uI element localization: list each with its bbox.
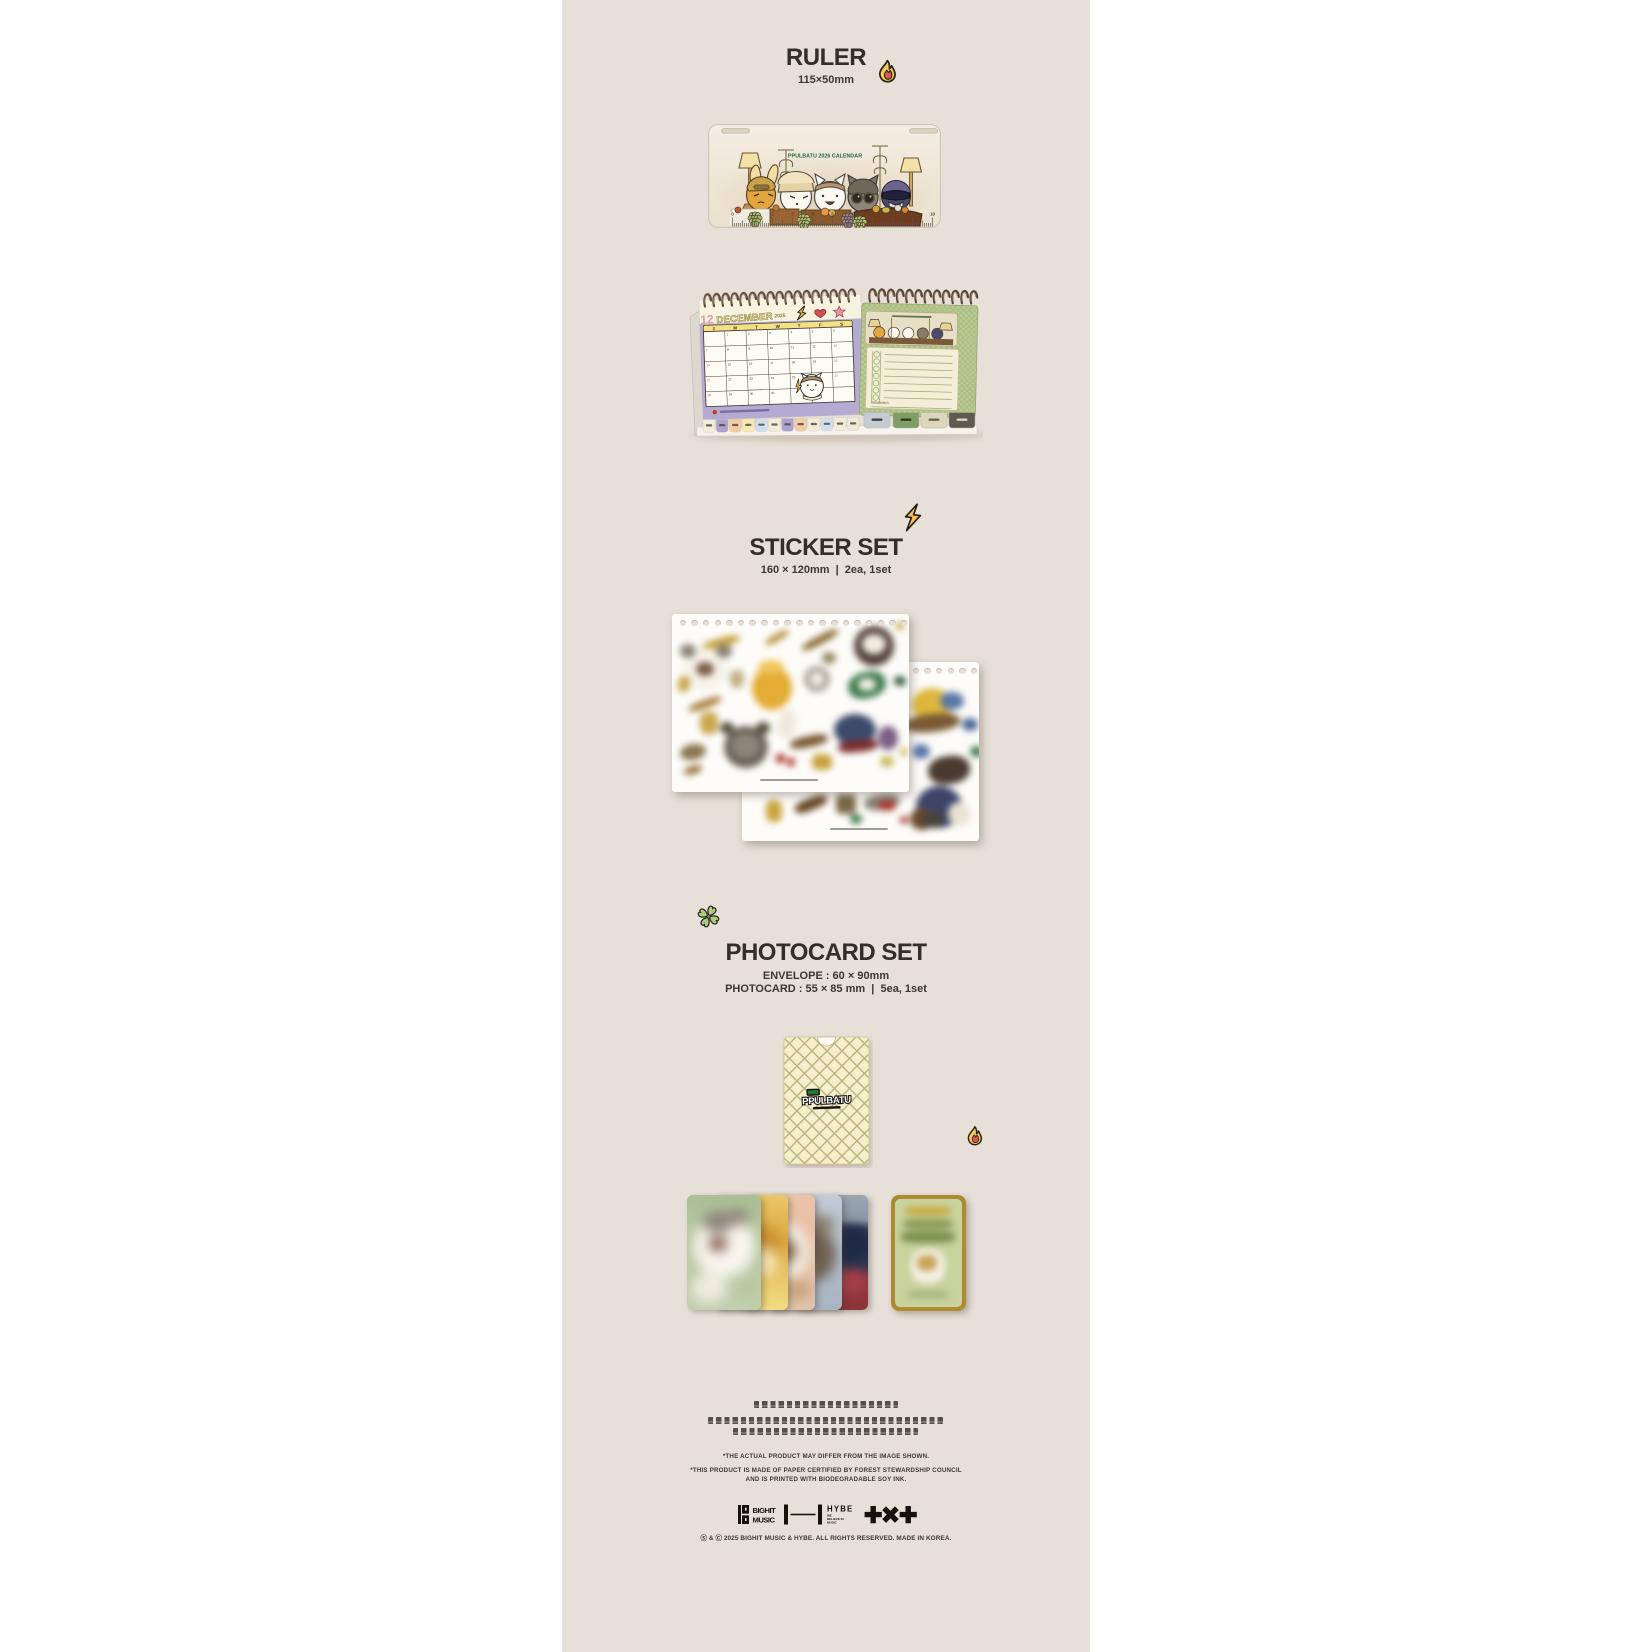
svg-text:2: 2	[771, 212, 774, 217]
svg-text:23: 23	[749, 377, 753, 381]
svg-text:PPULBATU 2026 CALENDAR: PPULBATU 2026 CALENDAR	[788, 154, 862, 160]
svg-text:4: 4	[811, 212, 814, 217]
svg-text:27: 27	[834, 374, 838, 378]
svg-text:17: 17	[770, 361, 774, 365]
svg-text:30: 30	[750, 392, 754, 396]
svg-text:8: 8	[891, 212, 894, 217]
svg-text:12: 12	[812, 344, 816, 348]
svg-text:14: 14	[706, 363, 710, 367]
svg-text:T: T	[755, 325, 758, 330]
svg-text:28: 28	[707, 393, 711, 397]
svg-text:5: 5	[831, 212, 834, 217]
svg-text:F: F	[819, 322, 822, 327]
svg-text:HYBE: HYBE	[827, 1505, 853, 1514]
svg-text:BIGHIT: BIGHIT	[753, 1506, 777, 1515]
svg-text:MUSIC: MUSIC	[753, 1516, 776, 1525]
svg-text:6: 6	[851, 212, 854, 217]
svg-text:16: 16	[749, 362, 753, 366]
svg-text:3: 3	[791, 212, 794, 217]
svg-text:10: 10	[930, 212, 936, 217]
svg-text:18: 18	[791, 360, 795, 364]
svg-text:25: 25	[792, 375, 796, 379]
svg-text:10: 10	[770, 346, 774, 350]
svg-text:PPULBATU: PPULBATU	[802, 1095, 851, 1108]
svg-text:S: S	[840, 322, 843, 327]
svg-text:MUSIC: MUSIC	[827, 1521, 838, 1525]
svg-text:21: 21	[707, 378, 711, 382]
svg-text:REMARKS: REMARKS	[872, 401, 890, 405]
svg-text:1: 1	[751, 212, 754, 217]
svg-text:11: 11	[791, 345, 795, 349]
svg-text:31: 31	[771, 391, 775, 395]
svg-text:13: 13	[833, 344, 837, 348]
svg-text:24: 24	[771, 376, 775, 380]
svg-text:M: M	[733, 325, 737, 330]
svg-text:19: 19	[813, 359, 817, 363]
svg-text:7: 7	[871, 212, 874, 217]
svg-text:T: T	[798, 323, 801, 328]
svg-text:29: 29	[729, 392, 733, 396]
svg-text:20: 20	[834, 359, 838, 363]
svg-text:0: 0	[731, 212, 734, 217]
svg-text:S: S	[712, 326, 715, 331]
svg-text:15: 15	[728, 362, 732, 366]
svg-text:22: 22	[728, 377, 732, 381]
svg-text:9: 9	[911, 212, 914, 217]
svg-text:2025: 2025	[774, 313, 786, 319]
